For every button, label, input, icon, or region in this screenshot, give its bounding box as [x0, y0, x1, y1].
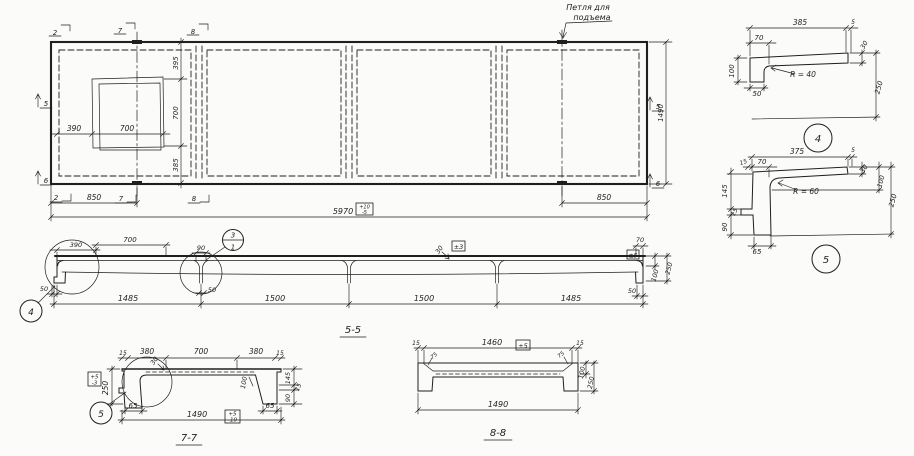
section-marker-5-left: 5 — [44, 100, 49, 108]
s55-detail-ref-4: 4 — [28, 308, 34, 318]
s55-dim-700: 700 — [123, 236, 137, 244]
plan-tol-bot: -5 — [362, 210, 367, 216]
section-8-8: 15 1460 ±5 15 75 75 100 250 1490 8-8 — [412, 338, 598, 440]
d4-ref: 4 — [815, 134, 821, 145]
s55-dim-1485-left: 1485 — [118, 294, 138, 303]
s77-dim-65-right: 65 — [266, 402, 275, 410]
plan-panel-4 — [507, 50, 639, 176]
detail-4: 385 5 70 100 R = 40 30 250 50 4 — [728, 18, 885, 152]
plan-outline — [51, 42, 647, 184]
d5-dim-100: 100 — [876, 174, 887, 188]
s77-dim-30: 30 — [149, 355, 160, 366]
s55-dim-50-notch: 50 — [208, 286, 216, 294]
s55-rib-notches — [194, 261, 504, 284]
s55-title: 5-5 — [345, 325, 361, 336]
s77-profile — [119, 369, 281, 408]
plan-dimension-lines — [49, 38, 673, 221]
plan-panel-dashed-outlines — [59, 50, 639, 176]
section-5-5: 390 700 90 3 1 4 ±3 30 70 ±5 100 250 50 … — [20, 230, 675, 338]
plan-dim-1490: 1490 — [657, 104, 665, 122]
s88-dim-15-left: 15 — [412, 340, 420, 347]
s77-tol-1490-bot: -10 — [228, 418, 237, 424]
d4-dim-385: 385 — [793, 18, 808, 27]
s77-dim-380-left: 380 — [140, 347, 155, 356]
plan-view: 2 7 8 2 7 8 5 6 5 6 395 700 385 390 700 … — [36, 3, 673, 221]
s55-dim-390: 390 — [70, 241, 82, 249]
d5-dim-375: 375 — [790, 147, 805, 156]
s88-dim-100: 100 — [577, 366, 587, 380]
s55-dim-30: 30 — [434, 244, 445, 255]
s77-dim-250: 250 — [101, 381, 110, 396]
s55-dim-70: 70 — [636, 236, 644, 244]
d4-dim-250: 250 — [873, 79, 884, 95]
d5-dim-30: 30 — [859, 163, 870, 174]
s55-dim-1485-right: 1485 — [561, 294, 581, 303]
s77-tol-250-bot: -3 — [92, 381, 98, 387]
section-marker-8-bottom: 8 — [192, 195, 197, 203]
s77-detail-circle — [122, 357, 172, 407]
s88-dim-250: 250 — [586, 376, 596, 390]
lifting-loop-label-1: Петля для — [566, 3, 610, 12]
s88-slopes — [423, 363, 573, 371]
s55-end-ribs — [54, 256, 643, 283]
s77-dim-145: 145 — [284, 372, 292, 384]
plan-dim-390: 390 — [67, 124, 82, 133]
s55-dim-1500-right: 1500 — [414, 294, 434, 303]
plan-dim-385: 385 — [172, 158, 180, 172]
s55-dim-50-left: 50 — [40, 285, 48, 293]
d5-dim-70: 70 — [758, 158, 767, 166]
s77-dim-1490: 1490 — [187, 410, 207, 419]
s77-title: 7-7 — [181, 433, 198, 444]
s55-dim-250: 250 — [664, 261, 675, 275]
d5-profile — [741, 167, 848, 235]
section-marker-7-bottom: 7 — [119, 195, 124, 203]
drawing-sheet: 2 7 8 2 7 8 5 6 5 6 395 700 385 390 700 … — [0, 0, 914, 456]
s55-tol-5: ±5 — [629, 253, 638, 260]
lifting-loop-leader — [560, 21, 613, 38]
d4-dim-30: 30 — [859, 39, 870, 50]
d5-dim-145: 145 — [721, 184, 729, 198]
d4-dim-5: 5 — [851, 19, 855, 26]
s55-balloon-top: 3 — [231, 232, 235, 240]
s88-dim-1460: 1460 — [482, 338, 502, 347]
plan-transverse-ribs — [196, 46, 502, 180]
section-marker-6-left: 6 — [44, 177, 49, 185]
s77-dim-65-left: 65 — [129, 402, 138, 410]
s88-dim-1490: 1490 — [488, 400, 508, 409]
s88-title: 8-8 — [490, 428, 506, 439]
section-marker-6-right: 6 — [656, 180, 661, 188]
d4-radius-label: R = 40 — [790, 70, 816, 79]
s77-dim-90: 90 — [284, 394, 292, 402]
detail-5: 375 5 15 70 145 15 90 R = 60 30 100 250 … — [721, 147, 899, 273]
s55-tol-3: ±3 — [454, 243, 464, 251]
s77-balloon-leader — [108, 392, 126, 405]
plan-dim-395: 395 — [172, 56, 180, 70]
s77-dim-100: 100 — [239, 376, 249, 390]
d5-radius-label: R = 60 — [793, 187, 819, 196]
d5-dim-65: 65 — [753, 248, 762, 256]
plan-opening — [92, 77, 164, 150]
d4-dim-100: 100 — [728, 64, 736, 78]
section-marker-7-top: 7 — [118, 27, 123, 35]
d5-bottom-line — [770, 234, 894, 236]
plan-dim-5970: 5970 — [333, 207, 353, 216]
plan-dim-850-right: 850 — [597, 193, 612, 202]
plan-dim-850-left: 850 — [87, 193, 102, 202]
d4-dim-70: 70 — [755, 34, 764, 42]
section-7-7: 15 380 700 380 15 30 250 +5 -3 145 15 90… — [88, 347, 304, 445]
plan-dim-700-v: 700 — [172, 106, 180, 120]
panel-drawing: 2 7 8 2 7 8 5 6 5 6 395 700 385 390 700 … — [0, 0, 914, 456]
s55-dim-1500-left: 1500 — [265, 294, 285, 303]
d5-dim-5: 5 — [851, 147, 855, 154]
section-marker-2-bottom: 2 — [54, 194, 59, 202]
section-marker-8-top: 8 — [191, 28, 196, 36]
s88-dim-75-left: 75 — [430, 351, 440, 360]
s77-detail-ref-5: 5 — [98, 410, 104, 420]
plan-centerlines — [137, 30, 562, 196]
s77-dim-15-right: 15 — [276, 350, 284, 357]
s55-dim-100: 100 — [650, 268, 661, 282]
lifting-loop-label-2: подъема — [573, 13, 610, 22]
s77-dim-700: 700 — [194, 347, 209, 356]
s55-flange-lines — [57, 261, 643, 275]
d4-bottom-line — [752, 117, 880, 119]
d5-dim-15-top: 15 — [739, 158, 749, 167]
d5-dim-250: 250 — [887, 192, 898, 208]
d5-ref: 5 — [823, 255, 829, 266]
section-marker-2-top: 2 — [53, 29, 58, 37]
s77-dim-380-right: 380 — [249, 347, 264, 356]
s88-profile — [418, 363, 578, 391]
s88-dim-15-right: 15 — [576, 340, 584, 347]
s88-tol-1460: ±5 — [518, 342, 528, 350]
plan-panel-2 — [207, 50, 341, 176]
s77-dim-15-left: 15 — [119, 350, 127, 357]
d4-dim-50: 50 — [753, 90, 762, 98]
s55-balloon-bottom: 1 — [231, 244, 235, 252]
s55-dim-50-right: 50 — [628, 287, 636, 295]
d5-dim-90: 90 — [721, 222, 729, 231]
plan-panel-3 — [357, 50, 491, 176]
plan-dim-700-h: 700 — [120, 124, 135, 133]
s55-dim-90: 90 — [197, 244, 205, 252]
